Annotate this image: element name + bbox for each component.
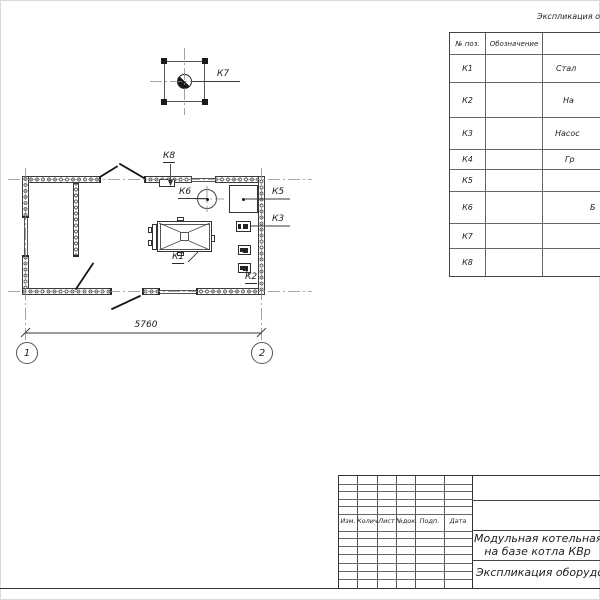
window-sill [196,288,198,295]
row-designation [486,192,543,223]
table-row: К5 [450,169,600,191]
grid-line [339,499,472,500]
pump-k3 [236,221,251,232]
wall-bottom-right [197,288,265,295]
row-pos: К6 [450,192,486,223]
center-mark [242,198,245,201]
row-name [543,224,600,248]
table-row: К3 Насос [450,117,600,149]
grid-line [339,531,472,532]
grid-line [472,560,600,561]
row-pos: К4 [450,150,486,169]
grid-line [339,554,472,555]
row-pos: К1 [450,55,486,82]
row-pos: К5 [450,170,486,191]
axis-bubble-1: 1 [16,342,38,364]
wall-right [258,176,265,295]
grid-line [339,484,472,485]
anchor-bolt [161,58,167,64]
anchor-bolt [202,58,208,64]
grid-line [357,476,358,589]
window-sill [22,255,29,257]
anchor-bolt [202,99,208,105]
boiler-k1-nozzle [177,217,184,221]
label-k5: К5 [272,188,284,197]
grid-line [339,579,472,580]
row-pos: К7 [450,224,486,248]
centerlines [8,48,312,342]
grid-line [472,500,600,501]
row-designation [486,249,543,276]
grid-line [339,538,472,539]
drawing-sheet: { "equip_table": { "title": "Экспликация… [0,0,600,600]
col-header-pos: № поз. [450,33,486,54]
col-izm: Изм. [339,518,357,525]
col-ndok: №док. [396,518,415,525]
axis-number: 1 [24,348,30,359]
table-row: К1 Стал [450,54,600,82]
label-k7: К7 [217,70,229,79]
window-sill [158,288,160,295]
equipment-table-header: № поз. Обозначение [450,33,600,54]
door-jamb [110,288,112,295]
window-sill [22,216,29,218]
row-designation [486,150,543,169]
row-designation [486,224,543,248]
grid-line [396,476,397,589]
grid-line [339,571,472,572]
grid-line [377,476,378,589]
row-designation [486,83,543,117]
sheet-title: Экспликация оборудования [476,566,600,579]
door-jamb [99,176,101,183]
row-designation [486,118,543,149]
boiler-k1-front-panel [152,224,157,250]
grid-line [339,506,472,507]
axis-number: 2 [259,348,265,359]
col-header-designation: Обозначение [486,33,543,54]
title-block: Изм. Колич Лист №док. Подп. Дата Модульн… [338,475,600,588]
axis-bubble-2: 2 [251,342,273,364]
window-bottom [160,290,197,294]
grid-line [339,491,472,492]
label-k3: К3 [272,215,284,224]
grid-line [339,563,472,564]
table-row: К8 [450,248,600,276]
row-designation [486,170,543,191]
wall-left-upper [22,176,29,218]
row-pos: К2 [450,83,486,117]
vent-k8 [159,179,175,187]
chimney-pipe-symbol [177,74,192,89]
boiler-k1-center [180,232,189,241]
boiler-k1-hinge [148,227,152,233]
col-kolich: Колич [357,518,377,525]
col-data: Дата [444,518,472,525]
window-left [24,218,28,256]
dimension-5760: 5760 [118,320,174,330]
grid-line [444,476,445,589]
window-top [192,178,215,182]
label-k2: К2 [245,273,257,284]
col-list: Лист [377,518,396,525]
row-pos: К3 [450,118,486,149]
row-name: Насос [543,118,600,149]
row-name [543,170,600,191]
sheet-frame-bottom [0,588,600,589]
partition-wall [73,183,79,256]
equipment-table-title: Экспликация оборудования [537,12,600,21]
row-name: На [543,83,600,117]
row-pos: К8 [450,249,486,276]
label-k1: К1 [172,253,184,264]
boiler-k1-hinge [148,240,152,246]
row-name: Стал [543,55,600,82]
col-podp: Подп. [415,518,444,525]
label-k6: К6 [179,188,191,197]
project-title-line2: на базе котла КВр [474,546,600,559]
anchor-bolt [161,99,167,105]
pump-k2 [238,245,251,255]
row-name: Гр [543,150,600,169]
grid-line [415,476,416,589]
label-k8: К8 [163,152,175,163]
grid-line [472,530,600,531]
row-designation [486,55,543,82]
row-name: Б [543,192,600,223]
center-mark [206,198,209,201]
grid-line [339,546,472,547]
grid-line [339,514,472,515]
wall-bottom-left [22,288,111,295]
boiler-k1-nozzle [211,235,215,242]
project-title-line1: Модульная котельная [474,533,600,546]
table-row: К4 Гр [450,149,600,169]
partition-end-cap [73,255,79,257]
table-row: К7 [450,223,600,248]
door-jamb [144,176,146,183]
equipment-table: № поз. Обозначение К1 Стал К2 На К3 Насо… [449,32,600,277]
row-name [543,249,600,276]
door-jamb [142,288,144,295]
col-header-name [543,33,600,54]
table-row: К2 На [450,82,600,117]
wall-top-left [22,176,100,183]
table-row: К6 Б [450,191,600,223]
